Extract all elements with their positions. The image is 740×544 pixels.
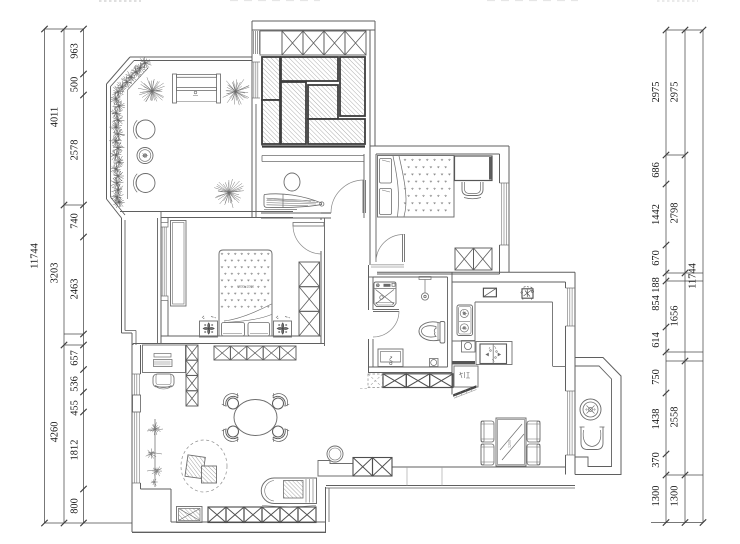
- svg-text:2798: 2798: [670, 203, 681, 224]
- svg-text:1300: 1300: [670, 486, 681, 507]
- svg-text:4011: 4011: [50, 107, 61, 127]
- svg-text:2975: 2975: [651, 82, 662, 103]
- svg-text:500: 500: [70, 77, 81, 93]
- svg-text:2578: 2578: [70, 140, 81, 161]
- svg-text:750: 750: [651, 369, 662, 385]
- svg-text:1200: 1200: [507, 440, 512, 448]
- svg-text:686: 686: [651, 162, 662, 178]
- svg-text:2558: 2558: [670, 407, 681, 428]
- svg-text:11744: 11744: [30, 242, 41, 268]
- svg-text:1438: 1438: [651, 409, 662, 430]
- svg-text:455: 455: [70, 400, 81, 416]
- svg-text:740: 740: [70, 213, 81, 229]
- svg-text:1442: 1442: [651, 204, 662, 225]
- svg-text:536: 536: [70, 376, 81, 392]
- svg-text:11744: 11744: [688, 262, 699, 288]
- svg-text:2975: 2975: [670, 82, 681, 103]
- svg-text:854: 854: [651, 294, 662, 310]
- svg-text:614: 614: [651, 331, 662, 347]
- svg-text:188: 188: [651, 277, 662, 293]
- svg-text:800: 800: [70, 498, 81, 514]
- svg-text:1800x2000: 1800x2000: [237, 285, 254, 289]
- svg-text:1300: 1300: [651, 486, 662, 507]
- svg-text:3203: 3203: [50, 263, 61, 284]
- svg-text:1812: 1812: [70, 440, 81, 461]
- svg-text:1656: 1656: [670, 306, 681, 327]
- svg-text:657: 657: [70, 350, 81, 366]
- svg-text:370: 370: [651, 452, 662, 468]
- svg-text:2463: 2463: [70, 279, 81, 300]
- svg-text:4260: 4260: [50, 422, 61, 443]
- svg-text:670: 670: [651, 250, 662, 266]
- svg-text:963: 963: [70, 43, 81, 59]
